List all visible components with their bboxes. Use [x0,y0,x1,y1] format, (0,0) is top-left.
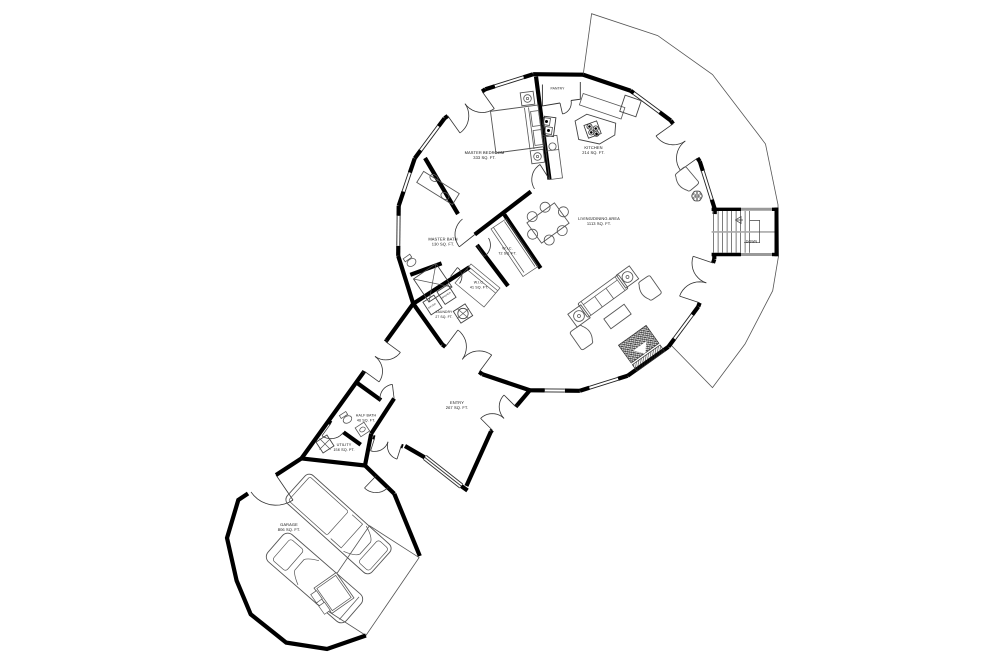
svg-text:MASTER BATH130 SQ. FT.: MASTER BATH130 SQ. FT. [428,237,457,247]
svg-text:KITCHEN214 SQ. FT.: KITCHEN214 SQ. FT. [582,145,604,155]
svg-text:DOWN: DOWN [746,240,758,244]
svg-text:HALF BATH40 SQ. FT.: HALF BATH40 SQ. FT. [356,414,377,423]
svg-text:LAUNDRY27 SQ. FT.: LAUNDRY27 SQ. FT. [435,310,453,319]
svg-text:PANTRY: PANTRY [550,87,565,91]
svg-text:GARAGE806 SQ. FT.: GARAGE806 SQ. FT. [278,522,300,532]
